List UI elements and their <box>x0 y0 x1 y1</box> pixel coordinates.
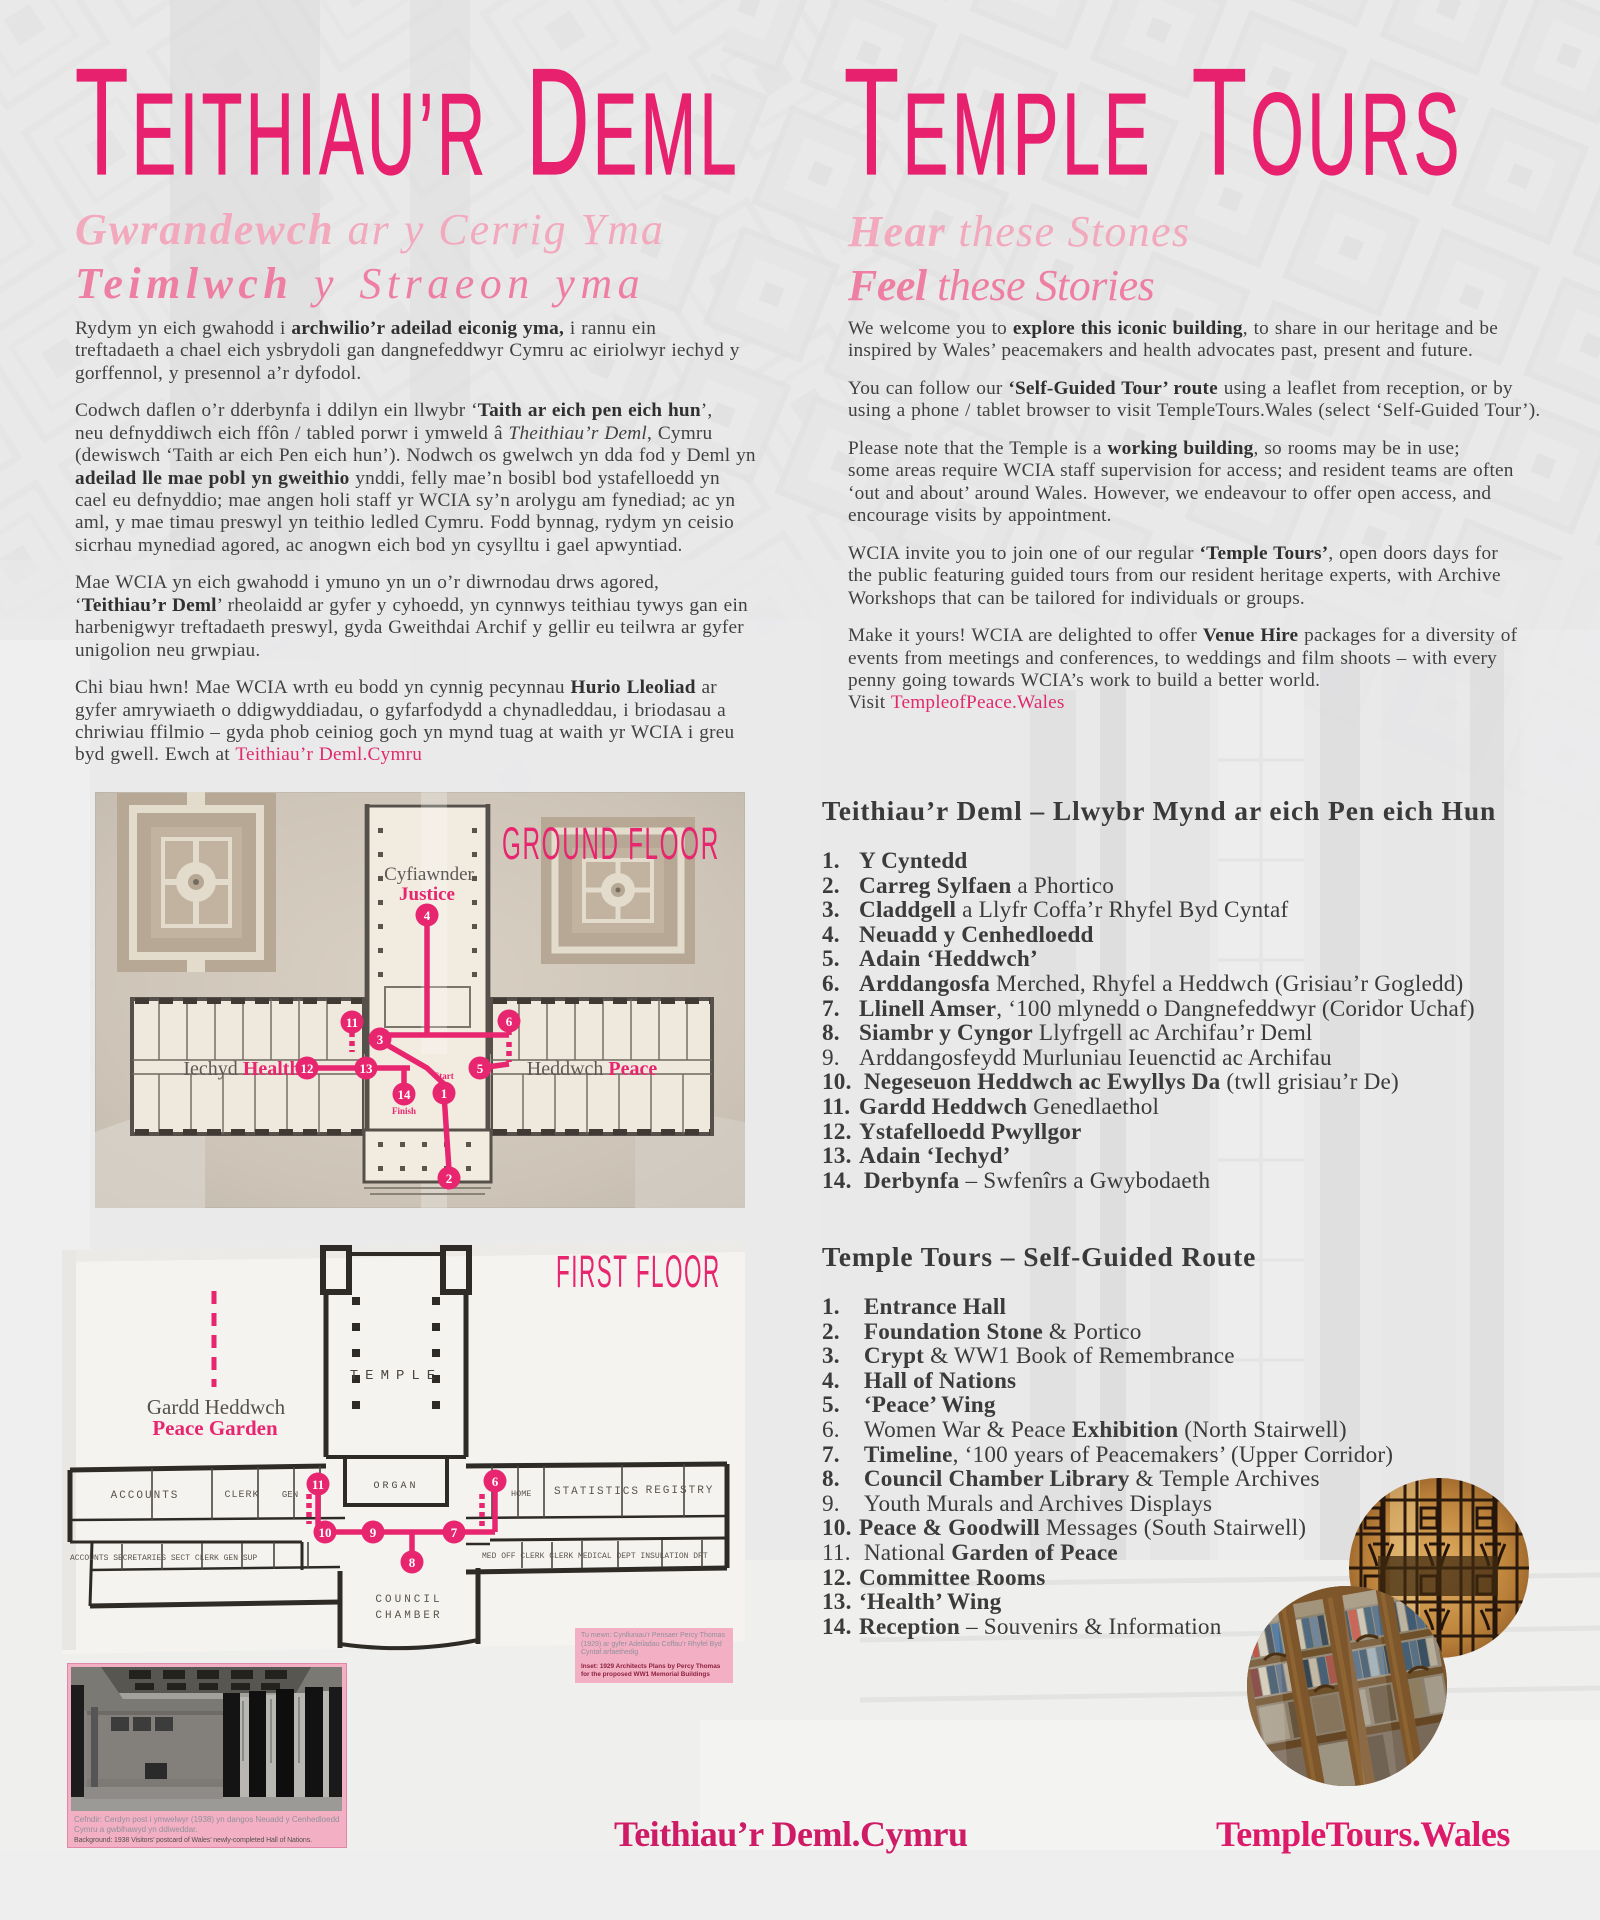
svg-text:ORGAN: ORGAN <box>373 1481 418 1492</box>
svg-text:13: 13 <box>360 1061 374 1076</box>
svg-text:Peace Garden: Peace Garden <box>152 1416 278 1440</box>
svg-text:11: 11 <box>312 1477 324 1492</box>
svg-text:CLERK: CLERK <box>224 1490 259 1501</box>
svg-text:STATISTICS: STATISTICS <box>554 1486 640 1498</box>
svg-text:6: 6 <box>506 1014 513 1029</box>
svg-text:TEMPLE: TEMPLE <box>350 1368 442 1384</box>
svg-text:14: 14 <box>398 1087 412 1102</box>
svg-text:GROUND FLOOR: GROUND FLOOR <box>502 818 720 869</box>
svg-text:COUNCIL: COUNCIL <box>375 1594 442 1606</box>
svg-text:GEN: GEN <box>282 1490 298 1500</box>
svg-text:2: 2 <box>446 1171 453 1186</box>
svg-text:Cyfiawnder: Cyfiawnder <box>384 864 474 885</box>
svg-text:REGISTRY: REGISTRY <box>646 1485 715 1497</box>
svg-text:CHAMBER: CHAMBER <box>375 1610 442 1622</box>
svg-text:Start: Start <box>434 1071 454 1081</box>
svg-text:MED OFF CLERK CLERK MEDICAL DE: MED OFF CLERK CLERK MEDICAL DEPT INSULAT… <box>482 1552 708 1561</box>
svg-text:3: 3 <box>377 1032 384 1047</box>
svg-text:ACCOUNTS SECRETARIES SECT CLER: ACCOUNTS SECRETARIES SECT CLERK GEN SUP <box>70 1554 257 1563</box>
svg-text:12: 12 <box>301 1061 314 1076</box>
svg-text:ACCOUNTS: ACCOUNTS <box>111 1490 180 1502</box>
svg-text:9: 9 <box>370 1525 377 1540</box>
svg-text:FIRST FLOOR: FIRST FLOOR <box>556 1247 721 1298</box>
svg-text:7: 7 <box>451 1525 458 1540</box>
svg-text:Finish: Finish <box>392 1106 416 1116</box>
svg-text:10: 10 <box>319 1525 332 1540</box>
svg-text:11: 11 <box>346 1015 358 1030</box>
svg-text:HOME: HOME <box>511 1489 531 1499</box>
svg-text:8: 8 <box>409 1555 416 1570</box>
svg-text:4: 4 <box>424 908 431 923</box>
svg-text:Iechyd Health: Iechyd Health <box>183 1058 300 1080</box>
svg-text:6: 6 <box>492 1474 499 1489</box>
svg-text:5: 5 <box>477 1061 484 1076</box>
svg-text:Heddwch Peace: Heddwch Peace <box>527 1058 658 1080</box>
svg-text:1: 1 <box>441 1086 448 1101</box>
svg-text:Justice: Justice <box>399 884 455 905</box>
